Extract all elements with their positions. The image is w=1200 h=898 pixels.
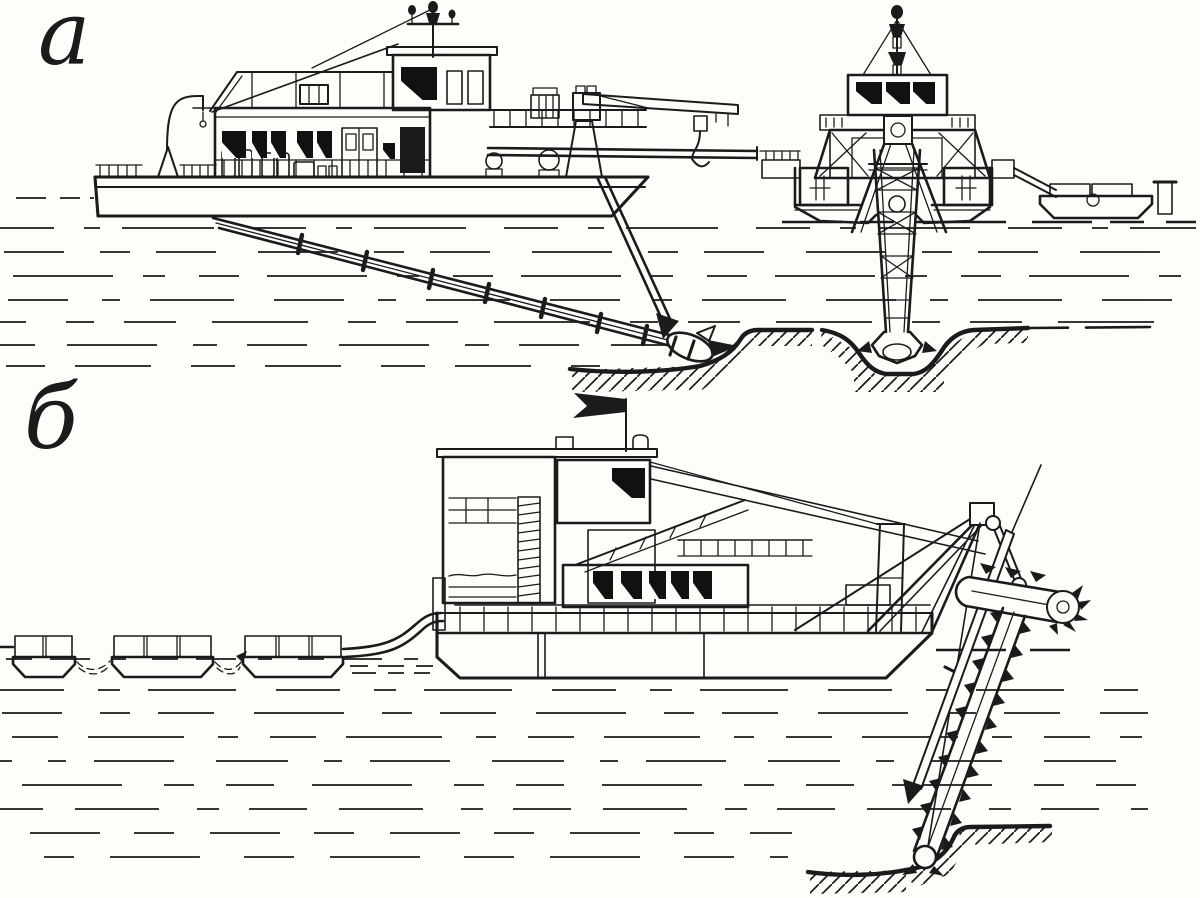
scanned-technical-drawing: а — [0, 0, 1200, 898]
panel-b-label: б — [24, 366, 79, 469]
dredger-diagram: а — [0, 0, 1200, 898]
panel-a-label: а — [38, 0, 90, 85]
